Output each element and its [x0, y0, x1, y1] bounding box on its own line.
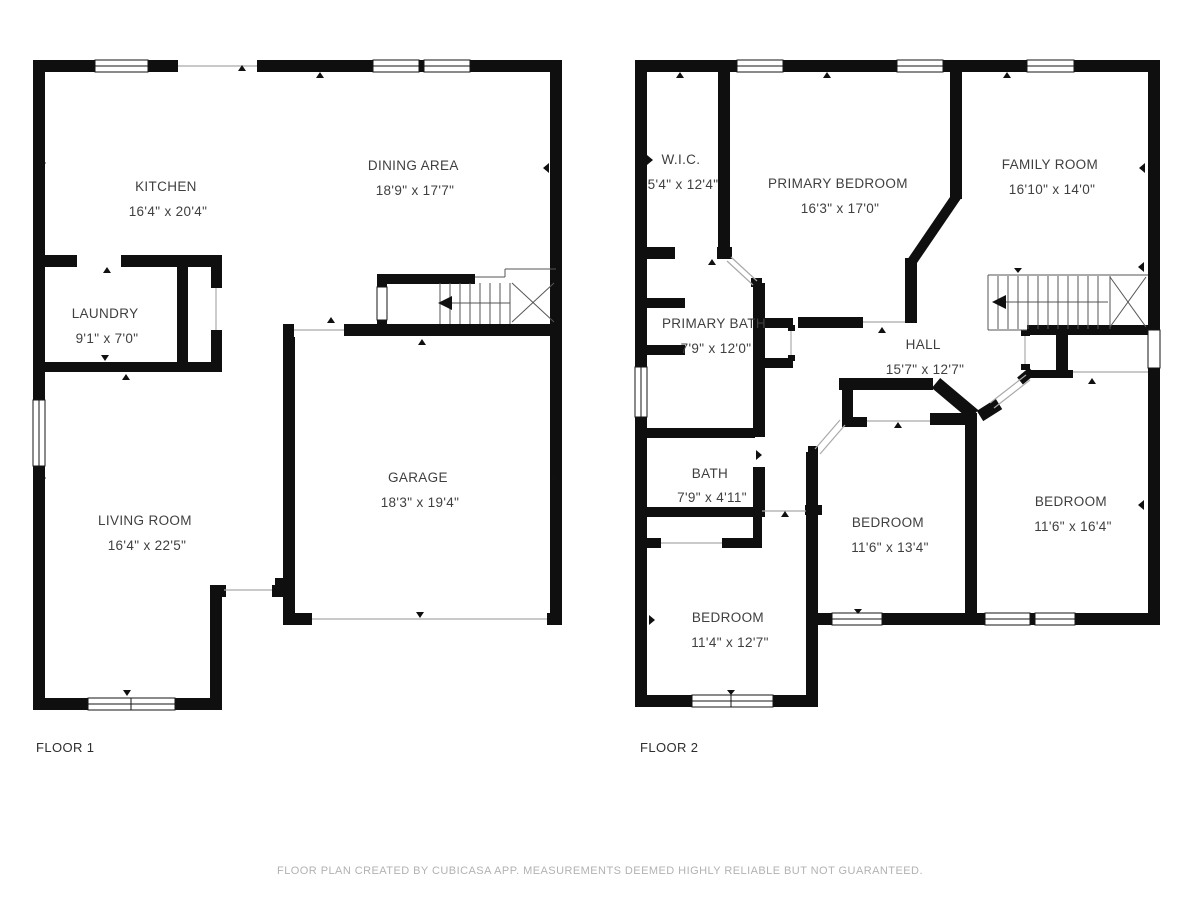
svg-text:BATH 7'9" x 4'11": BATH 7'9" x 4'11"	[677, 466, 747, 505]
svg-text:GARAGE 18'3" x 19'4": GARAGE 18'3" x 19'4"	[381, 470, 460, 510]
room-name: BEDROOM	[852, 515, 924, 530]
room-dimensions: 7'9" x 12'0"	[681, 341, 752, 356]
door-markers	[40, 65, 556, 696]
room-dimensions: 16'4" x 20'4"	[129, 204, 208, 219]
footer-disclaimer: FLOOR PLAN CREATED BY CUBICASA APP. MEAS…	[277, 865, 923, 877]
room-name: W.I.C.	[662, 152, 701, 167]
room-dimensions: 11'6" x 16'4"	[1034, 519, 1112, 534]
room-name: KITCHEN	[135, 179, 197, 194]
svg-text:W.I.C. 5'4" x 12'4": W.I.C. 5'4" x 12'4"	[648, 152, 719, 192]
room-dimensions: 16'10" x 14'0"	[1009, 182, 1095, 197]
room-dimensions: 11'4" x 12'7"	[691, 635, 769, 650]
room-dimensions: 7'9" x 4'11"	[677, 490, 747, 505]
svg-text:BEDROOM 11'6" x 13'4": BEDROOM 11'6" x 13'4"	[851, 515, 929, 555]
room-name: BEDROOM	[1035, 494, 1107, 509]
room-name: DINING AREA	[368, 158, 459, 173]
floor-1-openings	[77, 59, 547, 619]
floor-plan-canvas: KITCHEN 16'4" x 20'4" DINING AREA 18'9" …	[0, 0, 1200, 900]
svg-text:KITCHEN 16'4" x 20'4": KITCHEN 16'4" x 20'4"	[129, 179, 208, 219]
svg-text:LIVING ROOM 16'4" x 22'5: LIVING ROOM 16'4" x 22'5"	[98, 513, 196, 553]
room-dimensions: 18'9" x 17'7"	[376, 183, 455, 198]
room-dimensions: 18'3" x 19'4"	[381, 495, 460, 510]
svg-text:BEDROOM 11'6" x 16'4": BEDROOM 11'6" x 16'4"	[1034, 494, 1112, 534]
room-name: PRIMARY BEDROOM	[768, 176, 908, 191]
room-dimensions: 16'3" x 17'0"	[801, 201, 880, 216]
room-dimensions: 15'7" x 12'7"	[886, 362, 965, 377]
room-name: HALL	[906, 337, 941, 352]
svg-text:PRIMARY BEDROOM 16'3" x: PRIMARY BEDROOM 16'3" x 17'0"	[768, 176, 912, 216]
svg-text:BEDROOM 11'4" x 12'7": BEDROOM 11'4" x 12'7"	[691, 610, 769, 650]
room-dimensions: 16'4" x 22'5"	[108, 538, 187, 553]
room-dimensions: 5'4" x 12'4"	[648, 177, 719, 192]
room-dimensions: 11'6" x 13'4"	[851, 540, 929, 555]
floor-1-walls	[33, 60, 562, 710]
staircase	[988, 275, 1148, 330]
floor-2-plan: W.I.C. 5'4" x 12'4" PRIMARY BEDROOM 16'3…	[635, 60, 1160, 755]
svg-text:LAUNDRY 9'1" x 7'0": LAUNDRY 9'1" x 7'0"	[72, 306, 143, 346]
diagonal-wall	[1020, 371, 1032, 381]
diagonal-wall	[936, 383, 974, 415]
room-name: BEDROOM	[692, 610, 764, 625]
diagonal-wall	[905, 197, 962, 263]
room-name: LIVING ROOM	[98, 513, 192, 528]
svg-text:FAMILY ROOM 16'10" x 14': FAMILY ROOM 16'10" x 14'0"	[1002, 157, 1102, 197]
room-name: BATH	[692, 466, 728, 481]
room-name: LAUNDRY	[72, 306, 138, 321]
floor-2-label: FLOOR 2	[640, 740, 698, 755]
svg-text:HALL 15'7" x 12'7": HALL 15'7" x 12'7"	[886, 337, 965, 377]
floor-1-label: FLOOR 1	[36, 740, 94, 755]
room-name: PRIMARY BATH	[662, 316, 766, 331]
svg-text:DINING AREA 18'9" x 17'7: DINING AREA 18'9" x 17'7"	[368, 158, 462, 198]
room-dimensions: 9'1" x 7'0"	[76, 331, 139, 346]
room-name: GARAGE	[388, 470, 448, 485]
room-name: FAMILY ROOM	[1002, 157, 1098, 172]
stair-direction-arrow	[992, 295, 1006, 309]
floor-1-plan: KITCHEN 16'4" x 20'4" DINING AREA 18'9" …	[33, 59, 562, 755]
